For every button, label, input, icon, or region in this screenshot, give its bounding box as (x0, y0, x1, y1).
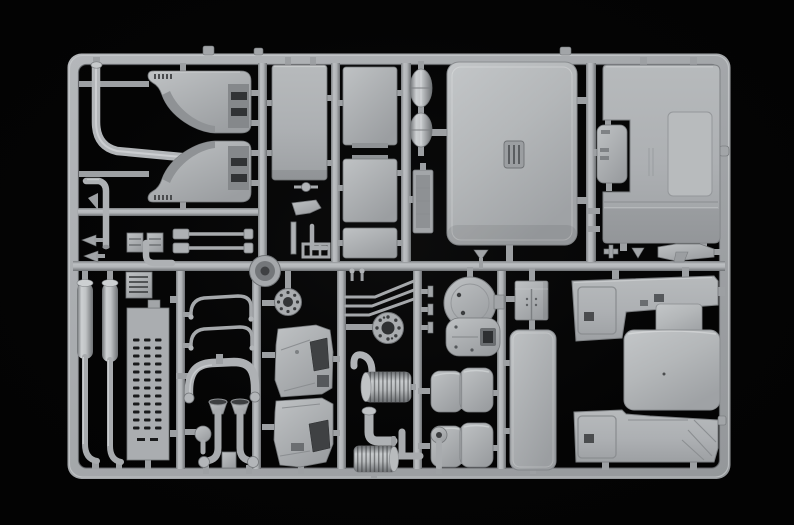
part-panel-2 (343, 155, 397, 222)
frame-tab (560, 47, 571, 55)
part-seat-upper (431, 368, 493, 412)
part-plug-fittings (421, 286, 433, 333)
part-ribbed-canister (354, 446, 399, 472)
photo-stage: Plastic model kit sprue (0, 0, 794, 525)
part-bolt-flange-large (373, 313, 404, 344)
sprue-photo: Plastic model kit sprue (0, 0, 794, 525)
part-dashboard-lower (274, 398, 333, 467)
part-intercooler-block (126, 272, 152, 298)
part-panel-1 (343, 67, 397, 148)
frame-tab (203, 46, 214, 55)
part-radiator-core (413, 163, 433, 233)
runner-vertical-h (413, 271, 422, 469)
part-fan-disc (250, 256, 281, 287)
part-tank-cap-square (446, 318, 500, 356)
runner-vertical-d (586, 63, 596, 262)
runner-vertical-a (258, 63, 267, 262)
part-dashboard-upper (275, 325, 333, 397)
runner-vertical-c (401, 63, 411, 262)
part-small-door (597, 125, 627, 183)
frame-tab (718, 416, 726, 425)
part-panel-3 (343, 228, 397, 258)
part-air-tank-1 (410, 69, 432, 107)
part-cab-roof-panel (447, 62, 577, 245)
part-air-tank-2 (410, 113, 432, 147)
part-tall-panel (272, 65, 327, 180)
part-bunk-panel (510, 330, 556, 470)
part-bolt-flange-small (275, 289, 302, 316)
runner-vertical-g (337, 271, 346, 469)
frame-tab (254, 48, 263, 55)
sunroof-hatch (504, 141, 524, 168)
runner-vertical-e (176, 271, 185, 469)
part-battery-box (515, 281, 548, 320)
runner-vertical-b (331, 63, 340, 262)
part-perforated-plate (127, 300, 169, 460)
